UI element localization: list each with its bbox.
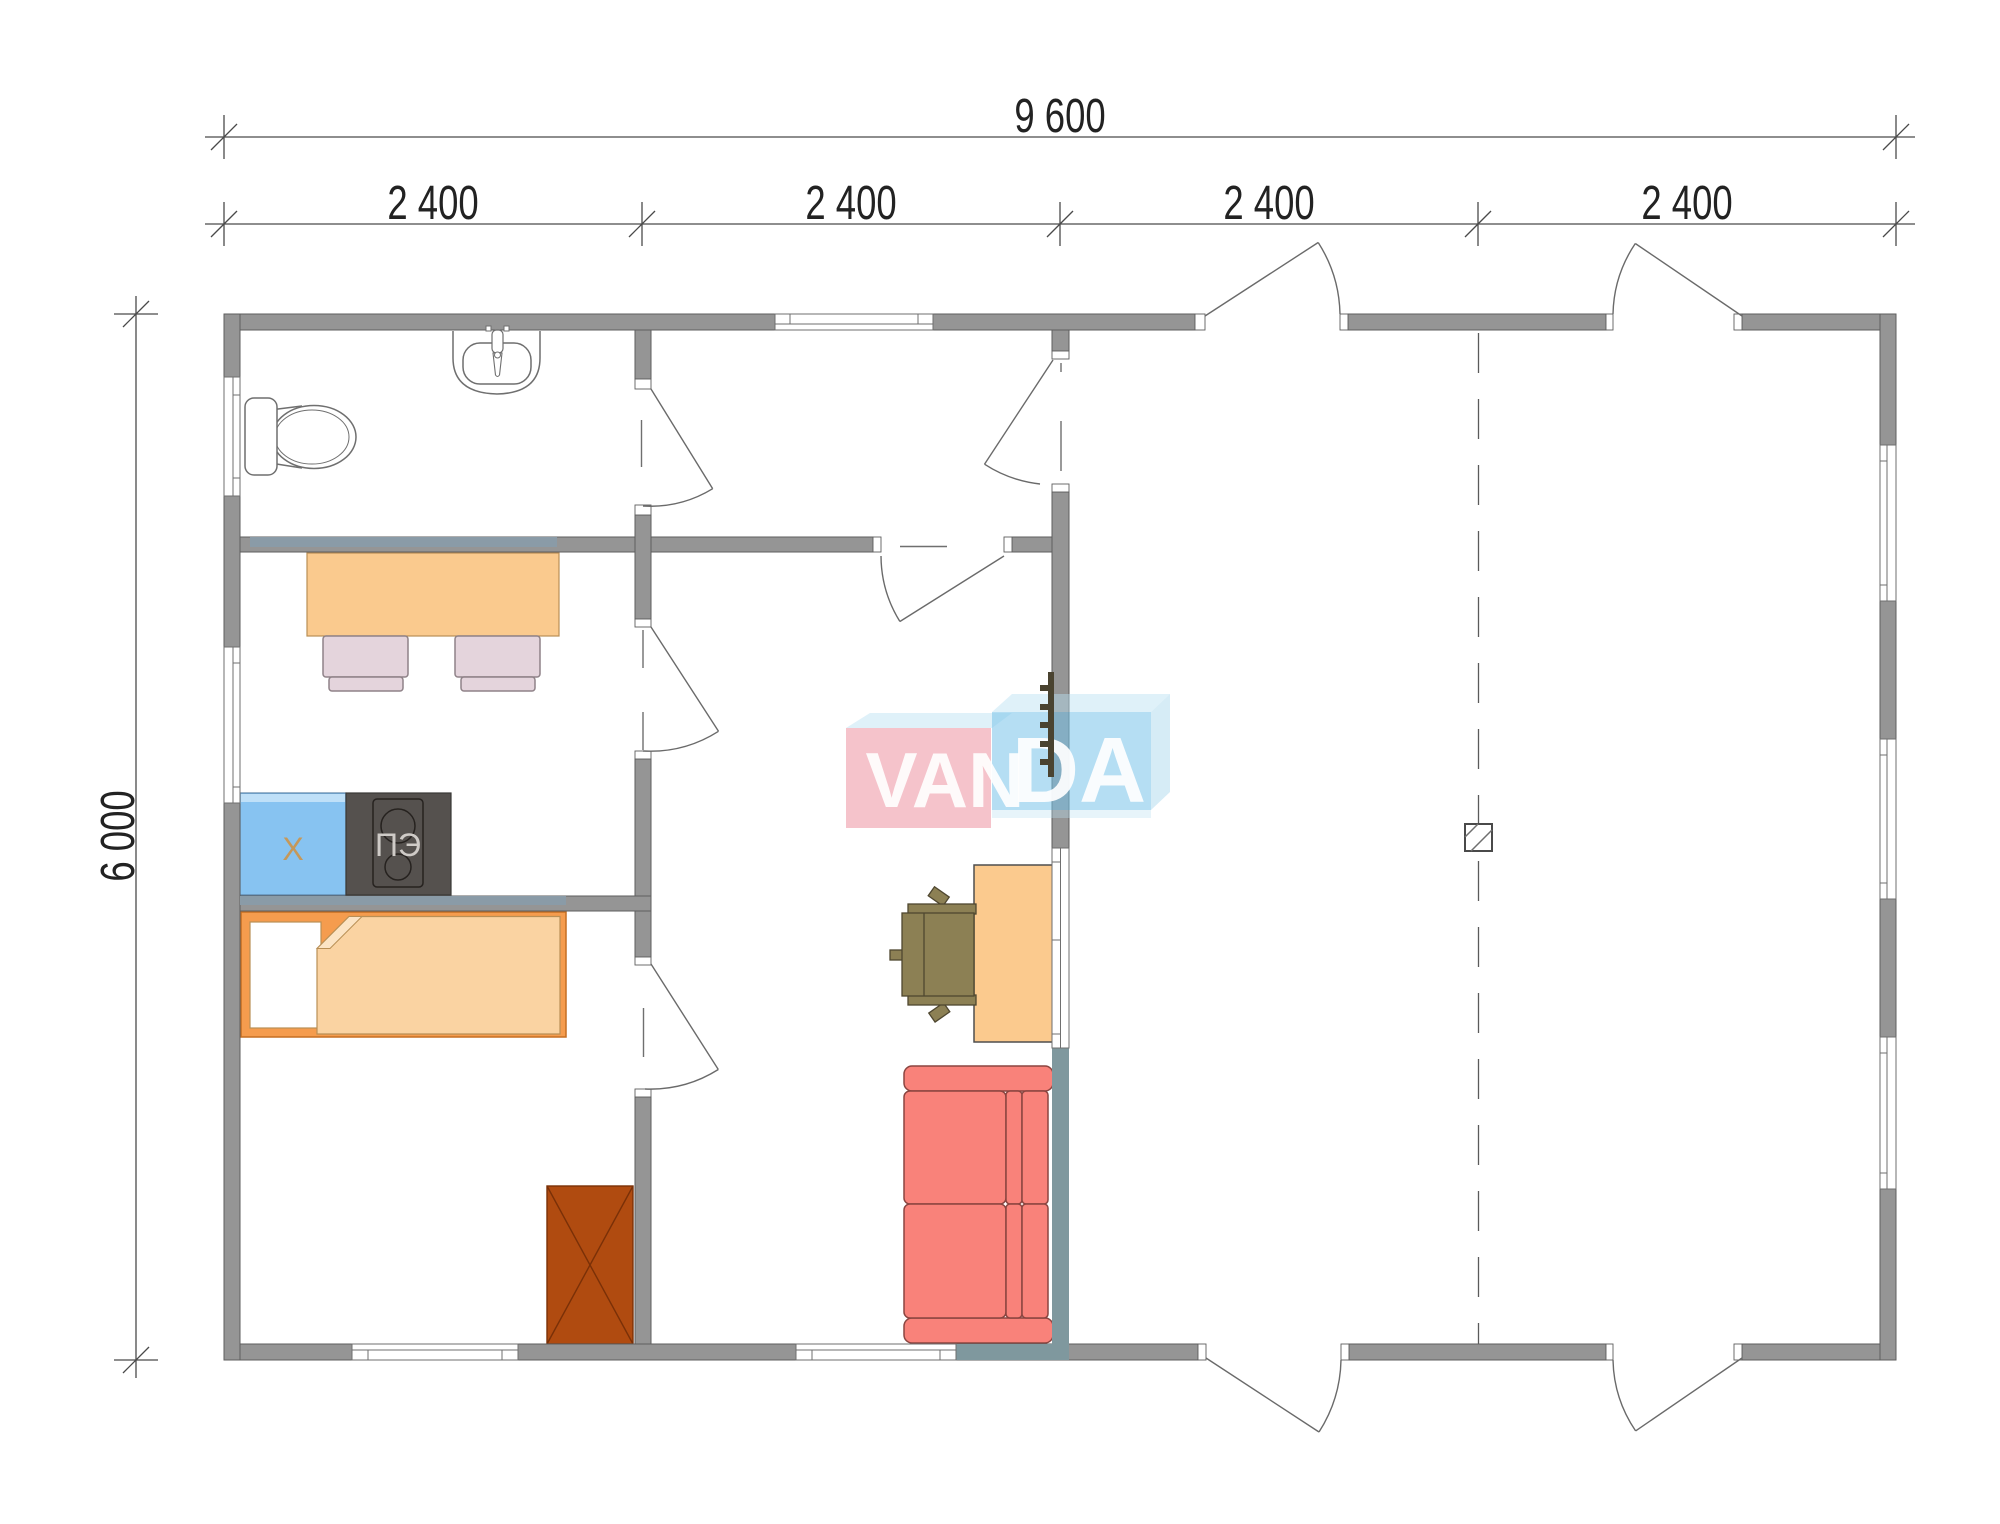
svg-text:2 400: 2 400	[1641, 176, 1732, 230]
svg-text:2 400: 2 400	[1223, 176, 1314, 230]
svg-text:DA: DA	[1012, 718, 1146, 822]
svg-text:ПЭ: ПЭ	[375, 827, 421, 863]
svg-text:9 600: 9 600	[1014, 89, 1105, 143]
svg-text:VAN: VAN	[866, 736, 1025, 824]
svg-text:2 400: 2 400	[387, 176, 478, 230]
svg-text:6 000: 6 000	[91, 790, 145, 881]
svg-text:2 400: 2 400	[805, 176, 896, 230]
svg-text:X: X	[282, 831, 303, 867]
